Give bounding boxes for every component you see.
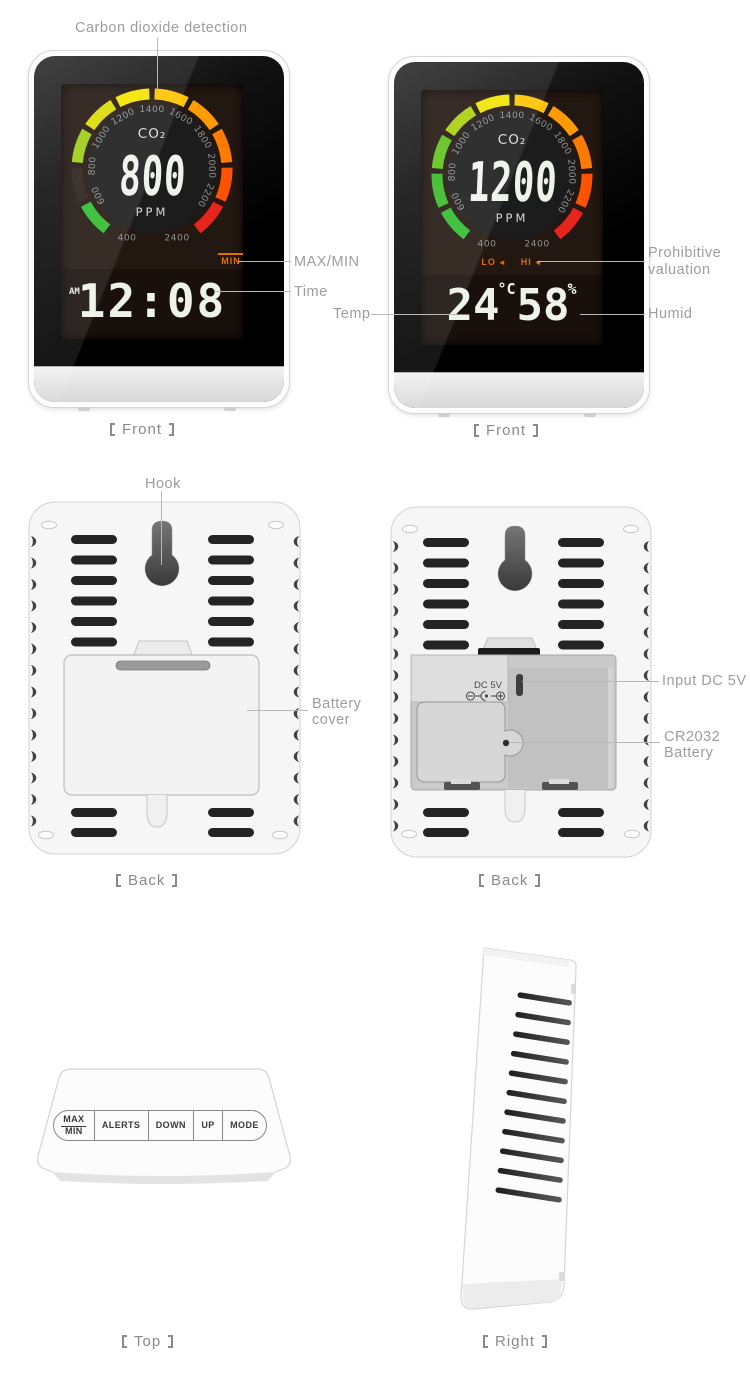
dc-jack-port bbox=[516, 674, 523, 696]
lcd-screen: 400 600 800 1000 1200 1400 1600 1800 200… bbox=[421, 90, 603, 345]
mode-button: MODE bbox=[223, 1111, 266, 1140]
svg-text:400: 400 bbox=[477, 239, 496, 250]
label-prohibitive-2: valuation bbox=[648, 262, 711, 278]
co2-gauge: 400 600 800 1000 1200 1400 1600 1800 200… bbox=[61, 84, 243, 254]
device-right-view bbox=[445, 938, 595, 1318]
leader-line-input-dc bbox=[522, 681, 659, 682]
device-back-view-2: DC 5V bbox=[385, 500, 675, 865]
temp-unit: °C bbox=[497, 282, 515, 297]
speaker-icon: ◄ bbox=[498, 258, 507, 267]
svg-text:1400: 1400 bbox=[499, 110, 524, 121]
co2-label: CO₂ bbox=[498, 132, 526, 148]
leader-line-cr2032 bbox=[510, 742, 660, 743]
device-foot bbox=[584, 413, 596, 417]
mode-label: MODE bbox=[230, 1121, 259, 1131]
max-label: MAX bbox=[61, 1115, 86, 1127]
ppm-unit: PPM bbox=[136, 205, 169, 219]
alerts-label: ALERTS bbox=[102, 1121, 140, 1131]
compartment-floor bbox=[508, 668, 612, 788]
hi-indicator: HI bbox=[521, 257, 532, 267]
svg-text:800: 800 bbox=[447, 162, 459, 182]
label-cr2032-1: CR2032 bbox=[664, 729, 720, 745]
device-foot bbox=[224, 407, 236, 411]
co2-value: 1200 bbox=[467, 150, 559, 214]
co2-label: CO₂ bbox=[138, 126, 166, 142]
device-bottom-band bbox=[394, 372, 644, 408]
device-foot bbox=[78, 407, 90, 411]
temp-humidity-readout: 24°C58% bbox=[421, 282, 603, 328]
down-label: DOWN bbox=[156, 1121, 186, 1131]
device-front-view-2: 400 600 800 1000 1200 1400 1600 1800 200… bbox=[388, 56, 650, 414]
co2-gauge: 400 600 800 1000 1200 1400 1600 1800 200… bbox=[421, 90, 603, 260]
down-button: DOWN bbox=[149, 1111, 195, 1140]
device-bottom-band bbox=[34, 366, 284, 402]
humidity-value: 58 bbox=[517, 280, 570, 331]
leader-line-battery-cover bbox=[247, 710, 308, 711]
label-time: Time bbox=[294, 284, 328, 300]
device-foot bbox=[438, 413, 450, 417]
leader-line-prohibitive bbox=[537, 261, 645, 262]
label-hook: Hook bbox=[145, 476, 181, 492]
label-co2-detection: Carbon dioxide detection bbox=[75, 20, 247, 36]
temp-value: 24 bbox=[446, 280, 499, 331]
latch-slot bbox=[116, 661, 210, 670]
clock-time: 12:08 bbox=[61, 278, 243, 324]
caption-front-1: Front bbox=[110, 421, 174, 438]
label-battery-cover-1: Battery bbox=[312, 696, 361, 712]
leader-line-co2-detection bbox=[157, 38, 158, 94]
label-prohibitive-1: Prohibitive bbox=[648, 245, 721, 261]
device-back-view-1 bbox=[20, 495, 315, 865]
compartment-edge-highlight bbox=[608, 668, 613, 788]
lcd-screen: 400 600 800 1000 1200 1400 1600 1800 200… bbox=[61, 84, 243, 339]
lo-indicator: LO bbox=[481, 257, 496, 267]
leader-line-time bbox=[215, 291, 291, 292]
bottom-foot bbox=[463, 1279, 562, 1308]
co2-value: 800 bbox=[118, 144, 188, 208]
svg-text:400: 400 bbox=[117, 233, 136, 244]
min-label: MIN bbox=[65, 1127, 83, 1137]
leader-line-temp bbox=[371, 314, 457, 315]
svg-text:2400: 2400 bbox=[164, 233, 189, 244]
label-battery-cover-2: cover bbox=[312, 712, 350, 728]
dc-port-panel bbox=[411, 655, 508, 702]
svg-text:2000: 2000 bbox=[565, 159, 577, 185]
label-input-dc: Input DC 5V bbox=[662, 673, 747, 689]
ppm-unit: PPM bbox=[496, 211, 529, 225]
battery-cover-latch bbox=[134, 641, 192, 655]
svg-text:1400: 1400 bbox=[139, 104, 164, 115]
device-front-view-1: 400 600 800 1000 1200 1400 1600 1800 200… bbox=[28, 50, 290, 408]
side-nub bbox=[559, 1272, 564, 1281]
dc-5v-label: DC 5V bbox=[474, 680, 503, 691]
up-button: UP bbox=[194, 1111, 223, 1140]
max-min-button: MAX MIN bbox=[54, 1111, 95, 1140]
svg-text:2400: 2400 bbox=[524, 239, 549, 250]
caption-right: Right bbox=[483, 1333, 547, 1350]
speaker-icon: ◄ bbox=[534, 258, 543, 267]
top-button-row: MAX MIN ALERTS DOWN UP MODE bbox=[53, 1110, 267, 1141]
bottom-notch bbox=[505, 790, 525, 822]
battery-holder-pin bbox=[503, 740, 509, 746]
svg-text:800: 800 bbox=[87, 156, 99, 176]
bottom-notch bbox=[147, 795, 167, 827]
label-humid: Humid bbox=[648, 306, 692, 322]
battery-cover bbox=[64, 655, 259, 795]
label-max-min: MAX/MIN bbox=[294, 254, 360, 270]
humidity-unit: % bbox=[568, 282, 577, 297]
alerts-button: ALERTS bbox=[95, 1111, 149, 1140]
leader-line-max-min bbox=[238, 261, 291, 262]
product-annotated-diagram: { "annotations": { "co2_detection": "Car… bbox=[0, 0, 750, 1377]
side-nub bbox=[571, 984, 576, 994]
svg-text:2000: 2000 bbox=[205, 153, 217, 179]
leader-line-humid bbox=[580, 314, 645, 315]
caption-top: Top bbox=[122, 1333, 173, 1350]
label-cr2032-2: Battery bbox=[664, 745, 713, 761]
alarm-indicators: LO◄ HI◄ bbox=[421, 257, 603, 267]
caption-back-1: Back bbox=[116, 872, 177, 889]
caption-front-2: Front bbox=[474, 422, 538, 439]
label-temp: Temp bbox=[333, 306, 370, 322]
caption-back-2: Back bbox=[479, 872, 540, 889]
leader-line-hook bbox=[161, 491, 162, 565]
up-label: UP bbox=[201, 1121, 214, 1131]
